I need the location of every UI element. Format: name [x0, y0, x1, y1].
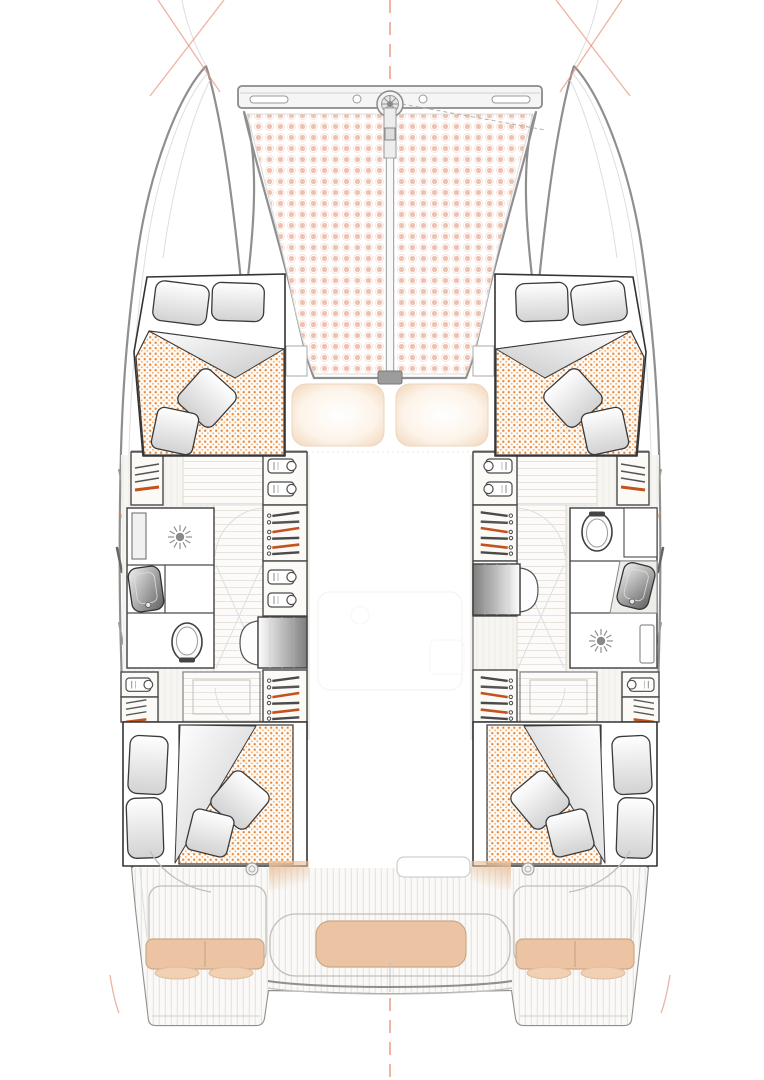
winch: [246, 863, 258, 875]
companionway-steps-port: [240, 617, 307, 668]
foredeck-sunpad-starboard: [396, 384, 488, 446]
foredeck-sunpad-port: [292, 384, 384, 446]
hanging-locker: [263, 670, 307, 723]
catamaran-deck-plan: [0, 0, 764, 1080]
cabin-forward-bed: [134, 274, 285, 456]
bathroom-starboard: [570, 508, 657, 668]
beam-slot-port: [250, 96, 288, 103]
cabin-aft-bed: [123, 722, 307, 866]
bed-pillow: [211, 282, 264, 322]
shower-door: [132, 513, 146, 559]
toilet-icon: [172, 623, 202, 663]
aft-bench-cushion: [316, 921, 466, 967]
shelf-cabinet: [121, 697, 158, 722]
saloon-door: [397, 857, 470, 877]
throw-pillow: [185, 808, 236, 859]
locker-folded-clothes: [263, 561, 307, 616]
step-pad: [209, 967, 253, 979]
shelf-cabinet: [131, 452, 163, 505]
companionway-steps-starboard: [473, 564, 538, 615]
bed-pillow: [128, 735, 169, 795]
vanity-cabinet: [624, 508, 657, 557]
helm-seat: [146, 939, 264, 969]
locker-folded-clothes: [263, 452, 307, 505]
washbasin-icon: [127, 565, 165, 613]
mast-step: [378, 371, 402, 384]
hanging-locker: [263, 505, 307, 561]
beam-slot-starboard: [492, 96, 530, 103]
nightstand: [286, 346, 307, 376]
bathroom-port: [127, 508, 214, 668]
bed-pillow: [126, 797, 164, 858]
toilet-icon: [582, 512, 612, 552]
throw-pillow: [150, 406, 200, 456]
step-pad: [155, 967, 199, 979]
cockpit-corner-shade: [269, 861, 309, 890]
shelf-cabinet: [121, 672, 158, 697]
bed-pillow: [152, 280, 210, 326]
rigging-line: [158, 0, 220, 92]
shower-shelf: [640, 625, 654, 663]
